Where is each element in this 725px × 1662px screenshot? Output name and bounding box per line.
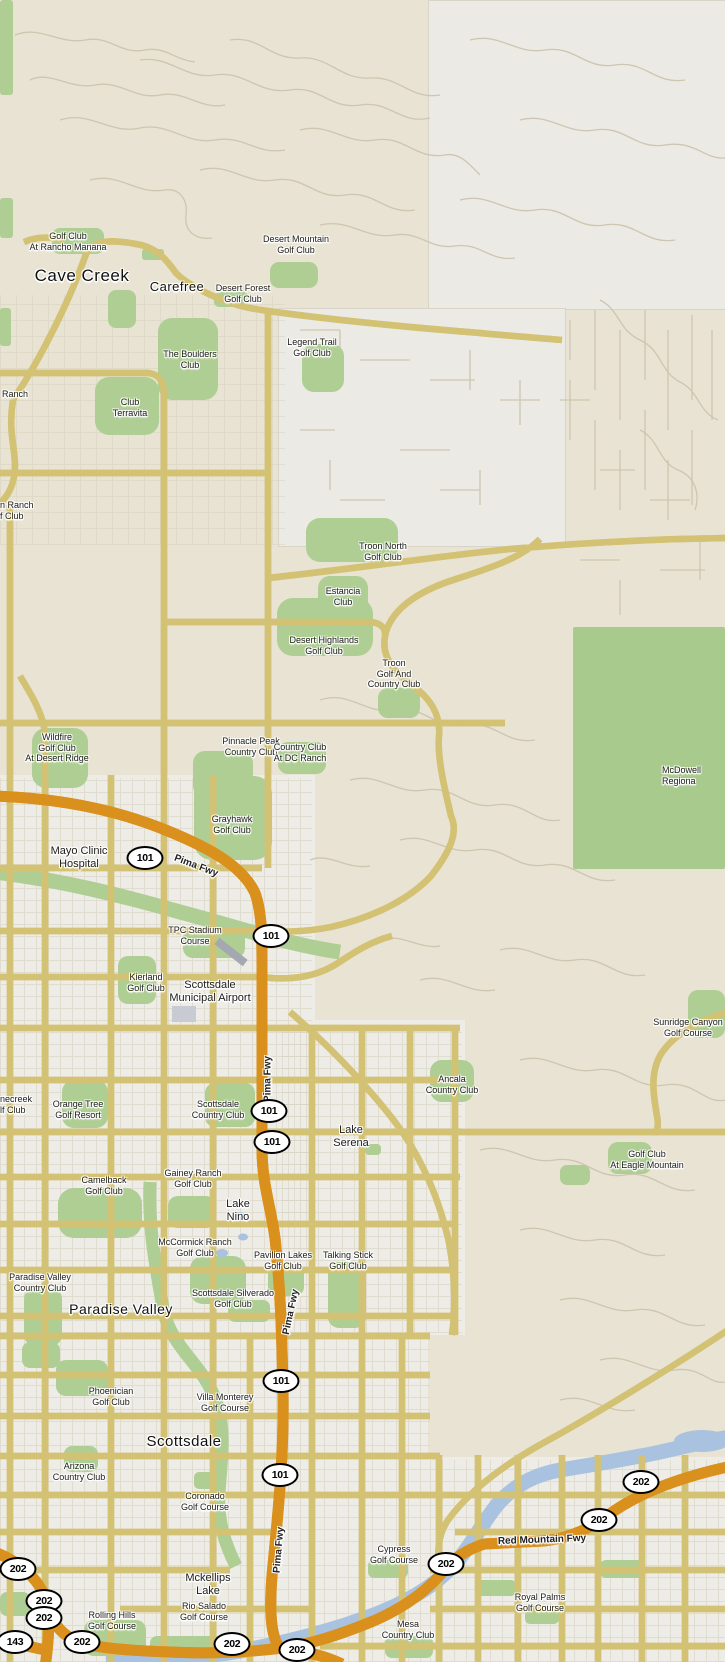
highway-shield-101: 101 [254, 1130, 291, 1154]
poi-gainey-ranch: Gainey RanchGolf Club [164, 1168, 221, 1189]
poi-dc-ranch: Country ClubAt DC Ranch [274, 742, 327, 763]
poi-mesa-cc: MesaCountry Club [382, 1619, 435, 1640]
poi-rancho-manana: Golf ClubAt Rancho Manana [29, 231, 106, 252]
poi-the-boulders: The BouldersClub [163, 349, 217, 370]
highway-shield-101: 101 [253, 924, 290, 948]
poi-pinnacle-peak: Pinnacle PeakCountry Club [222, 736, 280, 757]
city-cave-creek: Cave Creek [35, 266, 130, 286]
highway-shield-202: 202 [0, 1557, 37, 1581]
poi-talking-stick: Talking StickGolf Club [323, 1250, 373, 1271]
poi-scottsdale-silverado: Scottsdale SilveradoGolf Club [192, 1288, 274, 1309]
poi-club-terravita: ClubTerravita [113, 397, 148, 418]
poi-wildfire: WildfireGolf ClubAt Desert Ridge [25, 732, 89, 764]
poi-tpc-stadium: TPC StadiumCourse [168, 925, 222, 946]
poi-coronado: CoronadoGolf Course [181, 1491, 229, 1512]
poi-camelback: CamelbackGolf Club [81, 1175, 126, 1196]
highway-shield-202: 202 [64, 1630, 101, 1654]
highway-shield-202: 202 [581, 1508, 618, 1532]
highway-shield-202: 202 [279, 1638, 316, 1662]
poi-ranch-partial: Ranch [2, 389, 28, 400]
poi-mcdowell-regional-partial: McDowellRegiona [662, 765, 701, 786]
poi-villa-monterey: Villa MontereyGolf Course [197, 1392, 254, 1413]
poi-troon-golf-cc: TroonGolf AndCountry Club [368, 658, 421, 690]
poi-kierland: KierlandGolf Club [127, 972, 165, 993]
arterial-roads-layer [0, 238, 725, 1662]
poi-troon-north: Troon NorthGolf Club [359, 541, 407, 562]
poi-orange-tree: Orange TreeGolf Resort [53, 1099, 104, 1120]
poi-eagle-mountain: Golf ClubAt Eagle Mountain [610, 1149, 684, 1170]
map-graphics [0, 0, 725, 1662]
place-mayo-clinic: Mayo ClinicHospital [51, 845, 108, 870]
poi-pavilion-lakes: Pavilion LakesGolf Club [254, 1250, 312, 1271]
city-paradise-valley: Paradise Valley [69, 1301, 173, 1317]
poi-rio-salado: Rio SaladoGolf Course [180, 1601, 228, 1622]
poi-tatum-ranch-partial: n Ranchf Club [0, 500, 34, 521]
poi-rolling-hills: Rolling HillsGolf Course [88, 1610, 136, 1631]
poi-desert-forest: Desert ForestGolf Club [216, 283, 271, 304]
poi-sunridge-canyon: Sunridge CanyonGolf Course [653, 1017, 723, 1038]
highway-shield-202: 202 [214, 1632, 251, 1656]
highway-shield-202: 202 [26, 1606, 63, 1630]
poi-arizona-cc: ArizonaCountry Club [53, 1461, 106, 1482]
poi-grayhawk: GrayhawkGolf Club [212, 814, 253, 835]
poi-ancala: AncalaCountry Club [426, 1074, 479, 1095]
highway-shield-202: 202 [428, 1552, 465, 1576]
poi-scottsdale-cc: ScottsdaleCountry Club [192, 1099, 245, 1120]
highway-shield-101: 101 [262, 1463, 299, 1487]
mcdowell-regional-park-area [573, 627, 725, 869]
place-mckellips-lake: MckellipsLake [185, 1572, 230, 1597]
highway-shield-101: 101 [251, 1099, 288, 1123]
place-scottsdale-municipal-airport: ScottsdaleMunicipal Airport [169, 979, 250, 1004]
poi-desert-highlands: Desert HighlandsGolf Club [289, 635, 358, 656]
highway-shield-202: 202 [623, 1470, 660, 1494]
poi-cypress: CypressGolf Course [370, 1544, 418, 1565]
poi-paradise-valley-cc: Paradise ValleyCountry Club [9, 1272, 71, 1293]
poi-stonecreek-partial: necreeklf Club [0, 1094, 32, 1115]
place-lake-nino: LakeNino [226, 1198, 250, 1223]
poi-phoenician: PhoenicianGolf Club [89, 1386, 134, 1407]
poi-desert-mountain: Desert MountainGolf Club [263, 234, 329, 255]
poi-royal-palms: Royal PalmsGolf Course [515, 1592, 566, 1613]
fwy-pima-2: Pima Fwy [263, 1056, 274, 1102]
city-scottsdale: Scottsdale [146, 1433, 221, 1450]
highway-shield-101: 101 [127, 846, 164, 870]
place-lake-serena: LakeSerena [333, 1124, 368, 1149]
poi-mccormick-ranch: McCormick RanchGolf Club [158, 1237, 232, 1258]
building-footprint-icon [172, 1006, 196, 1022]
highway-shield-101: 101 [263, 1369, 300, 1393]
poi-estancia: EstanciaClub [326, 586, 361, 607]
city-carefree: Carefree [150, 279, 205, 294]
map-viewport[interactable]: Cave CreekCarefreeParadise ValleyScottsd… [0, 0, 725, 1662]
poi-legend-trail: Legend TrailGolf Club [287, 337, 337, 358]
